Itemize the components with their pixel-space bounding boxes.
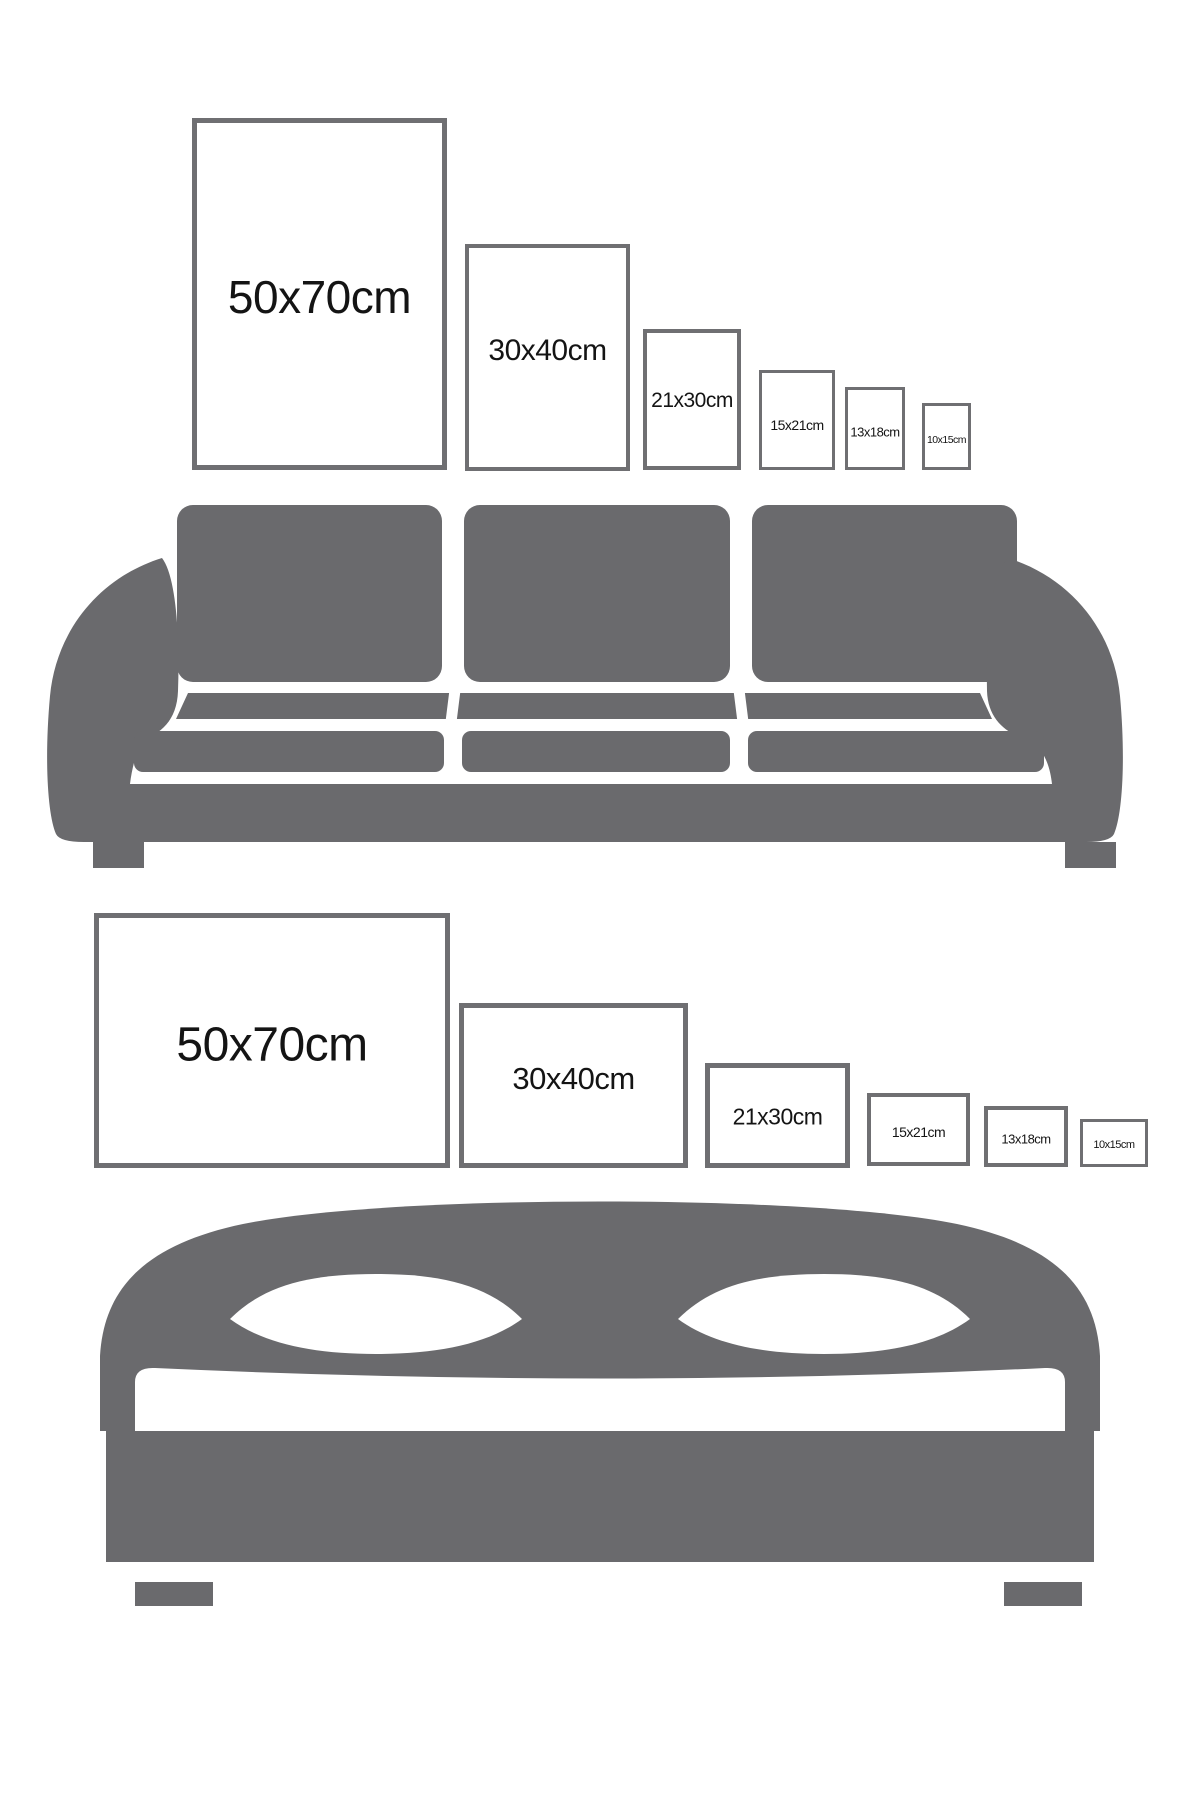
size-label: 21x30cm xyxy=(733,1104,823,1131)
poster-frame-landscape-10x15: 10x15cm xyxy=(1080,1119,1148,1167)
poster-frame-landscape-13x18: 13x18cm xyxy=(984,1106,1068,1167)
size-label: 10x15cm xyxy=(927,434,966,446)
sofa-icon xyxy=(30,496,1140,872)
size-label: 21x30cm xyxy=(651,389,733,413)
poster-frame-portrait-13x18: 13x18cm xyxy=(845,387,905,470)
size-label: 15x21cm xyxy=(892,1124,945,1140)
size-label: 10x15cm xyxy=(1093,1139,1134,1151)
poster-frame-portrait-50x70: 50x70cm xyxy=(192,118,447,470)
poster-frame-portrait-10x15: 10x15cm xyxy=(922,403,971,470)
poster-frame-portrait-15x21: 15x21cm xyxy=(759,370,835,470)
size-label: 50x70cm xyxy=(228,270,411,324)
size-label: 50x70cm xyxy=(176,1018,367,1073)
size-label: 13x18cm xyxy=(850,425,899,440)
bed-icon xyxy=(98,1186,1102,1606)
poster-frame-portrait-21x30: 21x30cm xyxy=(643,329,741,470)
poster-frame-portrait-30x40: 30x40cm xyxy=(465,244,630,471)
size-label: 30x40cm xyxy=(512,1061,634,1097)
poster-frame-landscape-21x30: 21x30cm xyxy=(705,1063,850,1168)
size-guide-infographic: 50x70cm 30x40cm 21x30cm 15x21cm 13x18cm … xyxy=(0,0,1200,1800)
poster-frame-landscape-50x70: 50x70cm xyxy=(94,913,450,1168)
size-label: 13x18cm xyxy=(1001,1132,1050,1147)
size-label: 15x21cm xyxy=(770,417,823,433)
size-label: 30x40cm xyxy=(488,334,606,368)
poster-frame-landscape-15x21: 15x21cm xyxy=(867,1093,970,1166)
poster-frame-landscape-30x40: 30x40cm xyxy=(459,1003,688,1168)
